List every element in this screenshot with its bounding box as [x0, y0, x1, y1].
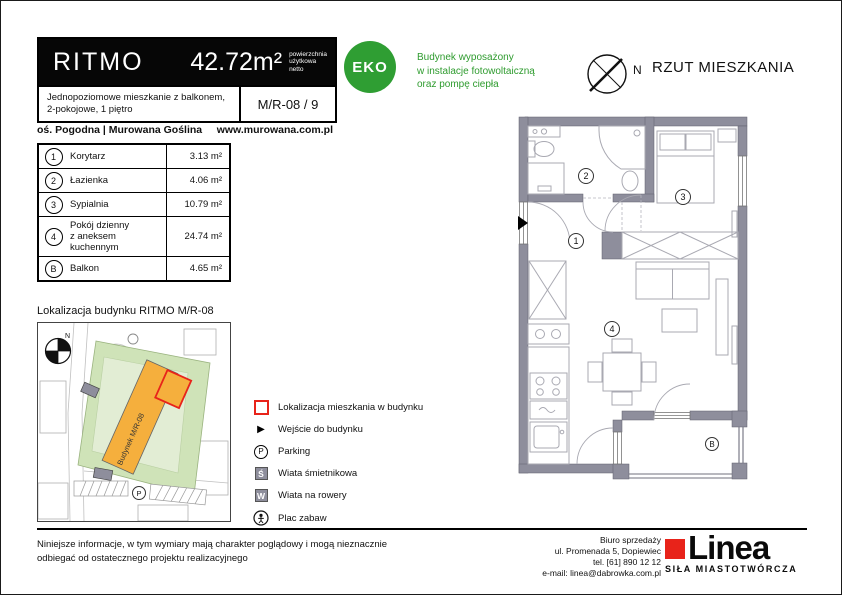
legend-item: Lokalizacja mieszkania w budynku [252, 400, 447, 415]
disclaimer-text: Niniejsze informacje, w tym wymiary mają… [37, 538, 387, 565]
bike-shelter-icon: W [255, 489, 268, 502]
room-name: Balkon [70, 263, 164, 274]
legend-icon-cell [252, 400, 270, 415]
legend-label: Plac zabaw [278, 513, 327, 524]
room-name: Pokój dzienny [70, 220, 164, 231]
description-line: 2-pokojowe, 1 piętro [47, 104, 231, 116]
map-legend: Lokalizacja mieszkania w budynku ▶ Wejśc… [252, 400, 447, 533]
project-name: RITMO [53, 48, 144, 77]
parking-marker-label: P [136, 489, 141, 498]
apartment-location-icon [254, 400, 269, 415]
legend-item: Ś Wiata śmietnikowa [252, 466, 447, 481]
room-number-badge: 1 [45, 148, 63, 166]
room-label-1: 1 [573, 236, 578, 246]
room-number-badge: B [45, 260, 63, 278]
area-value: 42.72m² [190, 48, 282, 77]
legend-item: W Wiata na rowery [252, 488, 447, 503]
map-playground-icon [128, 334, 138, 344]
room-name-cell: Korytarz [68, 148, 166, 165]
linea-logo-row: Linea [665, 532, 811, 564]
room-number-cell: 1 [39, 148, 68, 166]
legend-label: Wejście do budynku [278, 424, 363, 435]
table-row: B Balkon 4.65 m² [39, 257, 229, 280]
room-name-cell: Sypialnia [68, 196, 166, 213]
balcony-railing [629, 427, 743, 478]
room-area-cell: 24.74 m² [166, 217, 229, 256]
legend-item: ▶ Wejście do budynku [252, 422, 447, 437]
trash-shelter-icon: Ś [255, 467, 268, 480]
legend-icon-cell: ▶ [252, 425, 270, 435]
area-note-line: netto [289, 66, 327, 74]
eco-text-line: w instalacje fotowoltaiczną [417, 65, 535, 79]
balcony-door-kitchen [614, 432, 622, 464]
area-note: powierzchnia użytkowa netto [289, 51, 327, 74]
table-row: 2 Łazienka 4.06 m² [39, 169, 229, 193]
location-row: oś. Pogodna | Murowana Goślina www.murow… [37, 124, 333, 136]
area-group: 42.72m² powierzchnia użytkowa netto [190, 48, 327, 77]
parking-icon: P [254, 445, 268, 459]
room-label-4: 4 [609, 324, 614, 334]
building-entrance-icon: ▶ [257, 425, 265, 435]
estate-location: oś. Pogodna | Murowana Goślina [37, 124, 202, 136]
unit-code: M/R-08 / 9 [239, 87, 335, 121]
room-name-cell: Pokój dzienny z aneksem kuchennym [68, 217, 166, 256]
office-title: Biuro sprzedaży [471, 535, 661, 546]
legend-label: Lokalizacja mieszkania w budynku [278, 402, 423, 413]
room-name: Łazienka [70, 175, 164, 186]
apartment-description: Jednopoziomowe mieszkanie z balkonem, 2-… [39, 87, 239, 121]
header-black-bar: RITMO 42.72m² powierzchnia użytkowa nett… [39, 39, 335, 85]
legend-icon-cell: P [252, 445, 270, 459]
header-box: RITMO 42.72m² powierzchnia użytkowa nett… [37, 37, 337, 123]
office-phone: tel. [61] 890 12 12 [471, 557, 661, 568]
room-label-b: B [709, 440, 714, 449]
room-area-cell: 10.79 m² [166, 193, 229, 216]
room-label-3: 3 [680, 192, 685, 202]
room-number-cell: 3 [39, 196, 68, 214]
plan-title: RZUT MIESZKANIA [652, 59, 794, 76]
legend-icon-cell [252, 510, 270, 526]
room-number-cell: B [39, 260, 68, 278]
room-area-cell: 4.06 m² [166, 169, 229, 192]
room-name-line2: z aneksem kuchennym [70, 231, 164, 253]
area-note-line: użytkowa [289, 58, 327, 66]
legend-label: Parking [278, 446, 310, 457]
room-number-badge: 4 [45, 228, 63, 246]
office-email-link[interactable]: e-mail: linea@dabrowka.com.pl [542, 568, 661, 578]
table-row: 1 Korytarz 3.13 m² [39, 145, 229, 169]
eco-text-line: Budynek wyposażony [417, 51, 535, 65]
room-table: 1 Korytarz 3.13 m² 2 Łazienka 4.06 m² 3 … [37, 143, 231, 282]
website-link[interactable]: www.murowana.com.pl [217, 124, 333, 136]
linea-logo-tagline: SIŁA MIASTOTWÓRCZA [665, 564, 811, 574]
room-number-cell: 4 [39, 228, 68, 246]
room-name-cell: Łazienka [68, 172, 166, 189]
legend-icon-cell: Ś [252, 467, 270, 480]
room-label-2: 2 [583, 171, 588, 181]
table-row: 4 Pokój dzienny z aneksem kuchennym 24.7… [39, 217, 229, 257]
room-area-cell: 4.65 m² [166, 257, 229, 280]
sales-office-info: Biuro sprzedaży ul. Promenada 5, Dopiewi… [471, 535, 661, 579]
site-map-title: Lokalizacja budynku RITMO M/R-08 [37, 305, 214, 317]
playground-icon [253, 510, 269, 526]
room-number-badge: 2 [45, 172, 63, 190]
apartment-card-page: RITMO 42.72m² powierzchnia użytkowa nett… [0, 0, 842, 595]
disclaimer-line: odbiegać od ostatecznego projektu realiz… [37, 552, 387, 566]
legend-item: P Parking [252, 444, 447, 459]
compass-icon [584, 51, 630, 97]
parking-strip [74, 481, 128, 496]
map-compass-label: N [65, 333, 70, 340]
room-number-cell: 2 [39, 172, 68, 190]
linea-logo: Linea SIŁA MIASTOTWÓRCZA [665, 532, 811, 574]
linea-logo-name: Linea [688, 532, 769, 564]
header-description-row: Jednopoziomowe mieszkanie z balkonem, 2-… [39, 85, 335, 121]
office-address: ul. Promenada 5, Dopiewiec [471, 546, 661, 557]
disclaimer-line: Niniejsze informacje, w tym wymiary mają… [37, 538, 387, 552]
room-name: Sypialnia [70, 199, 164, 210]
balcony-door-living [654, 413, 690, 419]
legend-label: Wiata śmietnikowa [278, 468, 357, 479]
eco-badge-icon: EKO [344, 41, 396, 93]
room-area-cell: 3.13 m² [166, 145, 229, 168]
compass-north-label: N [633, 63, 642, 77]
floor-plan: 1 2 3 4 B [517, 111, 763, 493]
legend-label: Wiata na rowery [278, 490, 347, 501]
area-note-line: powierzchnia [289, 51, 327, 59]
site-map: Budynek M/R-08 P N [37, 322, 231, 522]
window-bedroom [739, 156, 747, 206]
room-number-badge: 3 [45, 196, 63, 214]
table-row: 3 Sypialnia 10.79 m² [39, 193, 229, 217]
room-name-cell: Balkon [68, 260, 166, 277]
linea-logo-red-square-icon [665, 539, 685, 559]
legend-item: Plac zabaw [252, 510, 447, 526]
description-line: Jednopoziomowe mieszkanie z balkonem, [47, 92, 231, 104]
legend-icon-cell: W [252, 489, 270, 502]
eco-text-line: oraz pompę ciepła [417, 78, 535, 92]
room-name: Korytarz [70, 151, 164, 162]
eco-text: Budynek wyposażony w instalacje fotowolt… [417, 51, 535, 92]
